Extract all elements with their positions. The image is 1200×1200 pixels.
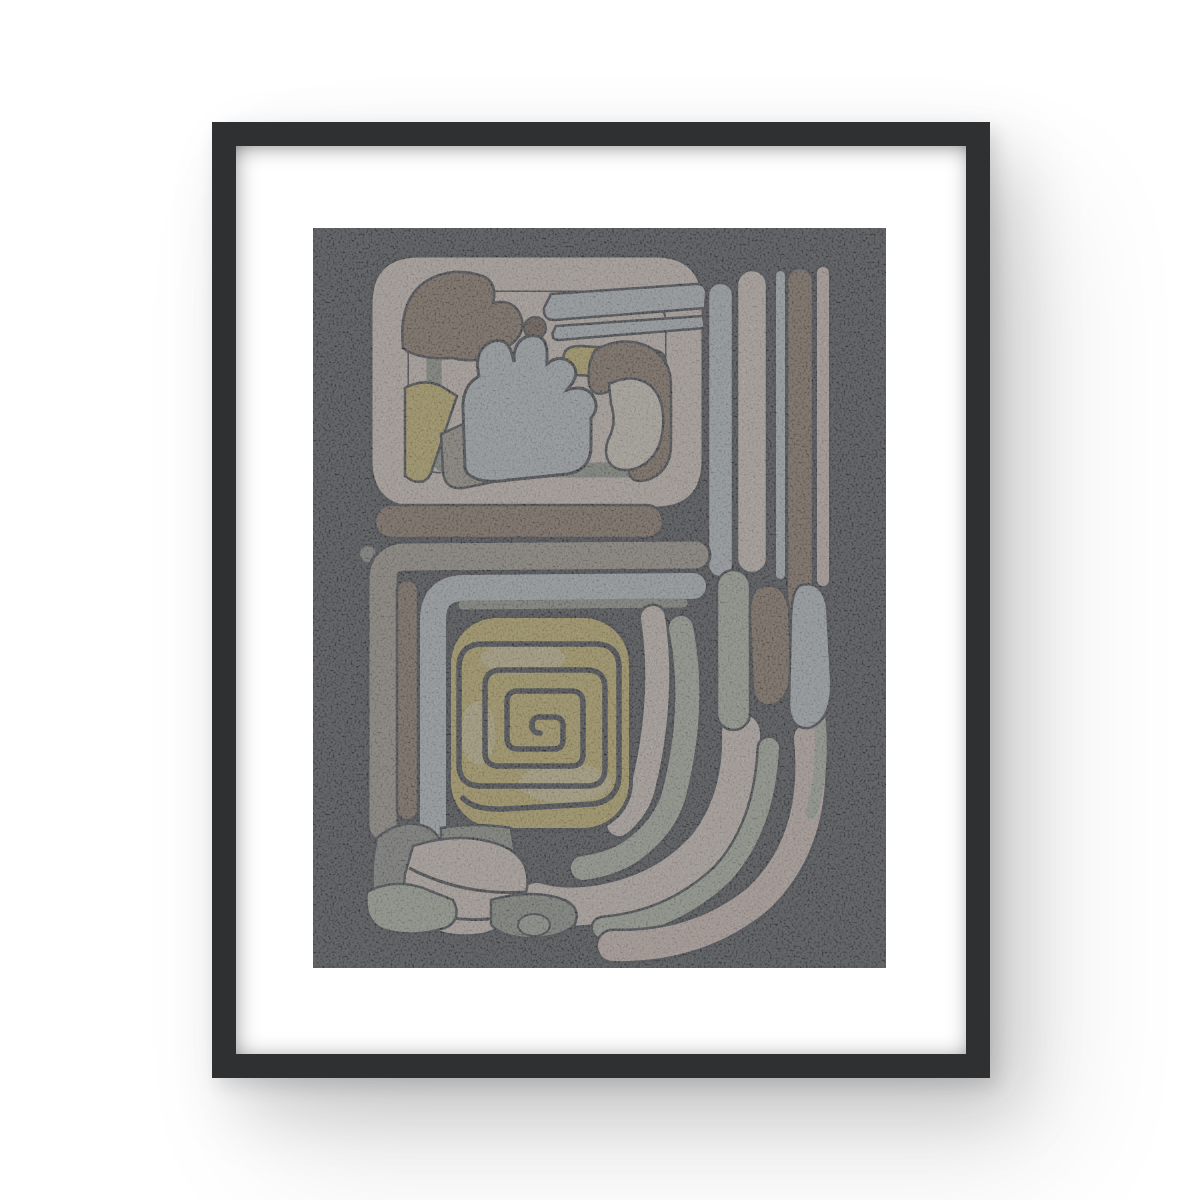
mat-border [236,146,966,1054]
abstract-artwork [313,228,886,968]
product-photo-scene: Abstract composition in pre-Columbian gl… [0,0,1200,1200]
artwork-caption: Abstract composition in pre-Columbian gl… [0,0,1,1]
poster-frame [212,122,990,1078]
grain-light-overlay [313,228,886,968]
artwork-canvas [313,228,886,968]
